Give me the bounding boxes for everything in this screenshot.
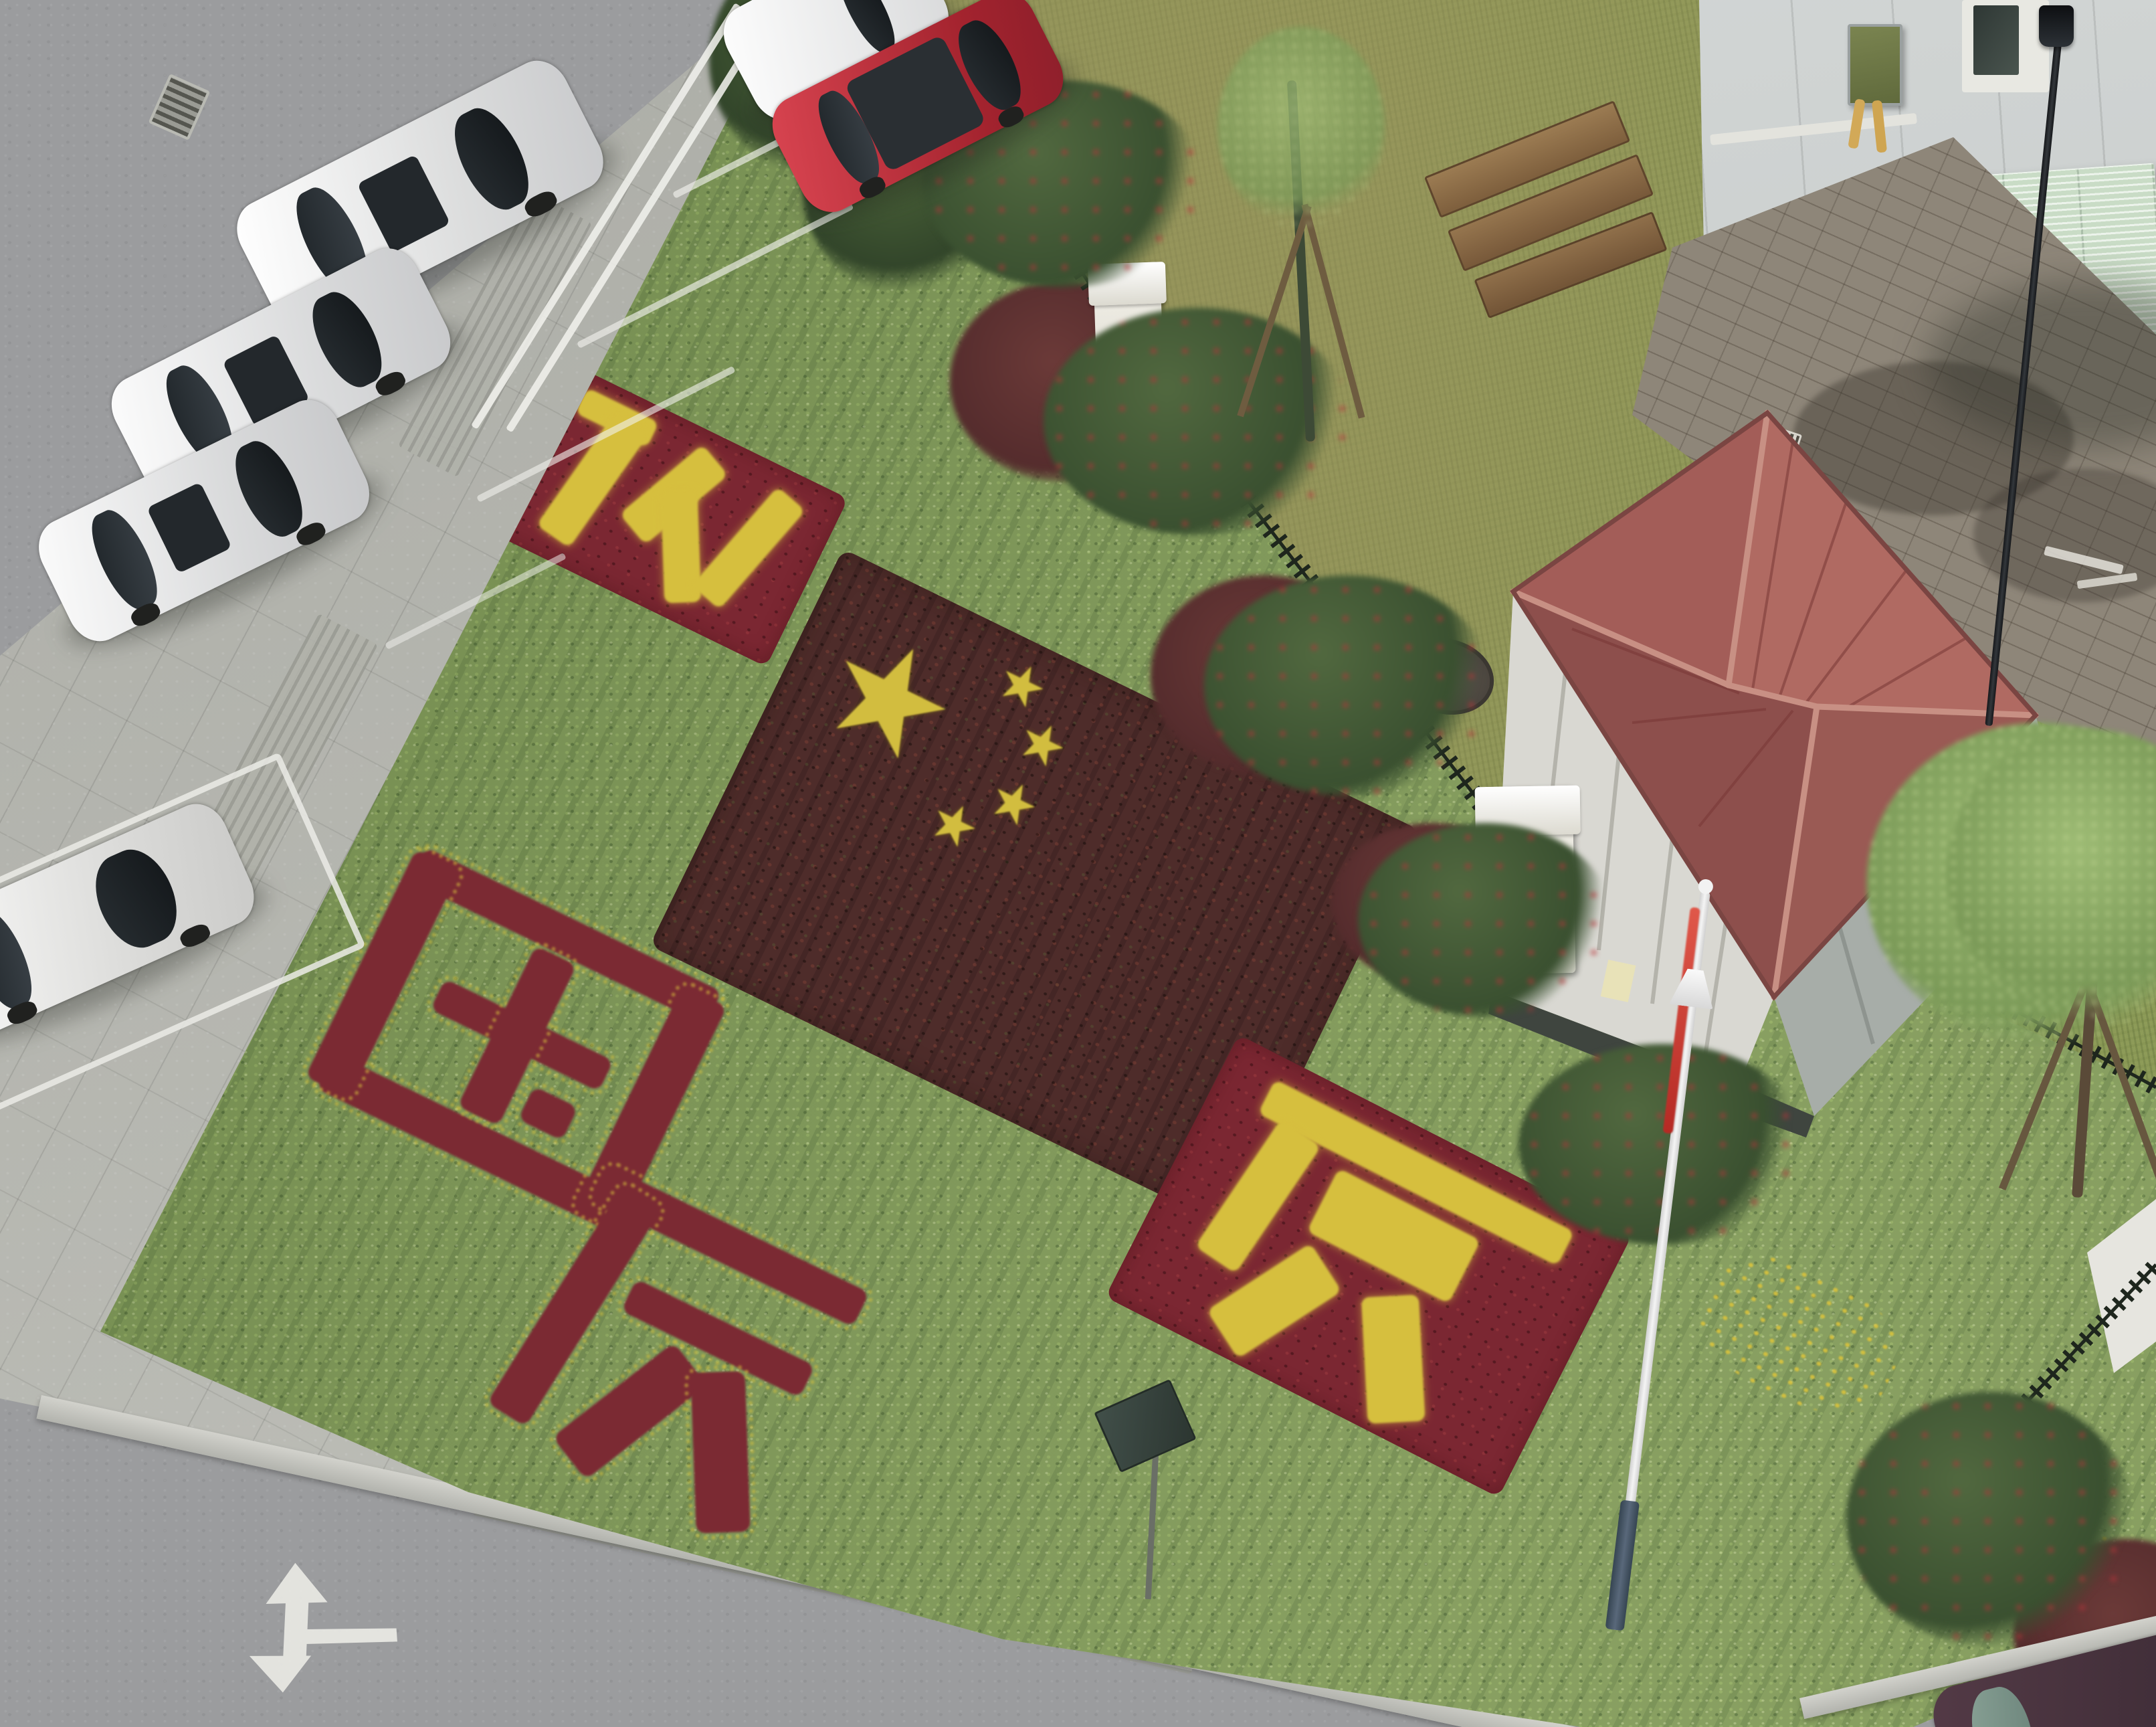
rose-bush-4 <box>1358 823 1612 1017</box>
rose-bush-3 <box>1204 575 1492 796</box>
white-wall-sliver <box>2087 1199 2156 1373</box>
rose-bush-6 <box>1846 1392 2134 1646</box>
garden-lamp-lantern-icon <box>2039 5 2074 47</box>
sapling-foliage <box>1217 27 1385 228</box>
aerial-photo-scene: ★ ★ ★ ★ ★ <box>0 0 2156 1727</box>
utility-house-roof-face-ne <box>1729 413 2036 715</box>
two-way-arrow-marking <box>223 1553 405 1699</box>
